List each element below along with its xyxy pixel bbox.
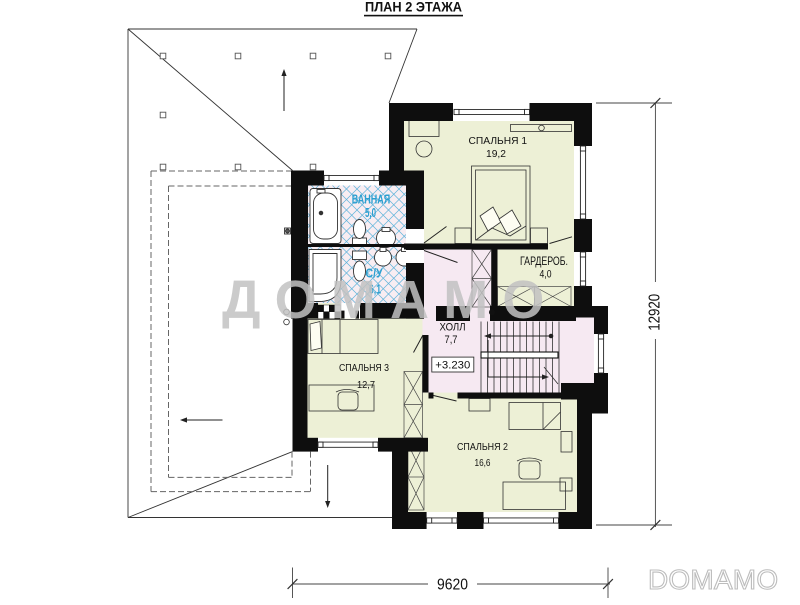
svg-text:DOMAMO: DOMAMO (648, 564, 778, 595)
svg-text:СПАЛЬНЯ 2: СПАЛЬНЯ 2 (457, 441, 508, 453)
svg-text:СПАЛЬНЯ 3: СПАЛЬНЯ 3 (339, 362, 389, 374)
svg-text:16,6: 16,6 (475, 457, 491, 469)
svg-text:ПЛАН 2 ЭТАЖА: ПЛАН 2 ЭТАЖА (365, 0, 462, 14)
svg-text:9620: 9620 (437, 577, 468, 594)
svg-text:ГАРДЕРОБ.: ГАРДЕРОБ. (520, 256, 568, 268)
svg-text:19,2: 19,2 (486, 148, 506, 160)
svg-text:5,0: 5,0 (365, 205, 376, 220)
svg-text:+3.230: +3.230 (435, 360, 470, 372)
svg-text:12920: 12920 (647, 294, 664, 331)
svg-text:СПАЛЬНЯ 1: СПАЛЬНЯ 1 (469, 135, 528, 147)
svg-text:12,7: 12,7 (357, 379, 375, 391)
svg-text:ДОМАМО: ДОМАМО (222, 270, 559, 330)
svg-text:7,7: 7,7 (445, 334, 458, 346)
